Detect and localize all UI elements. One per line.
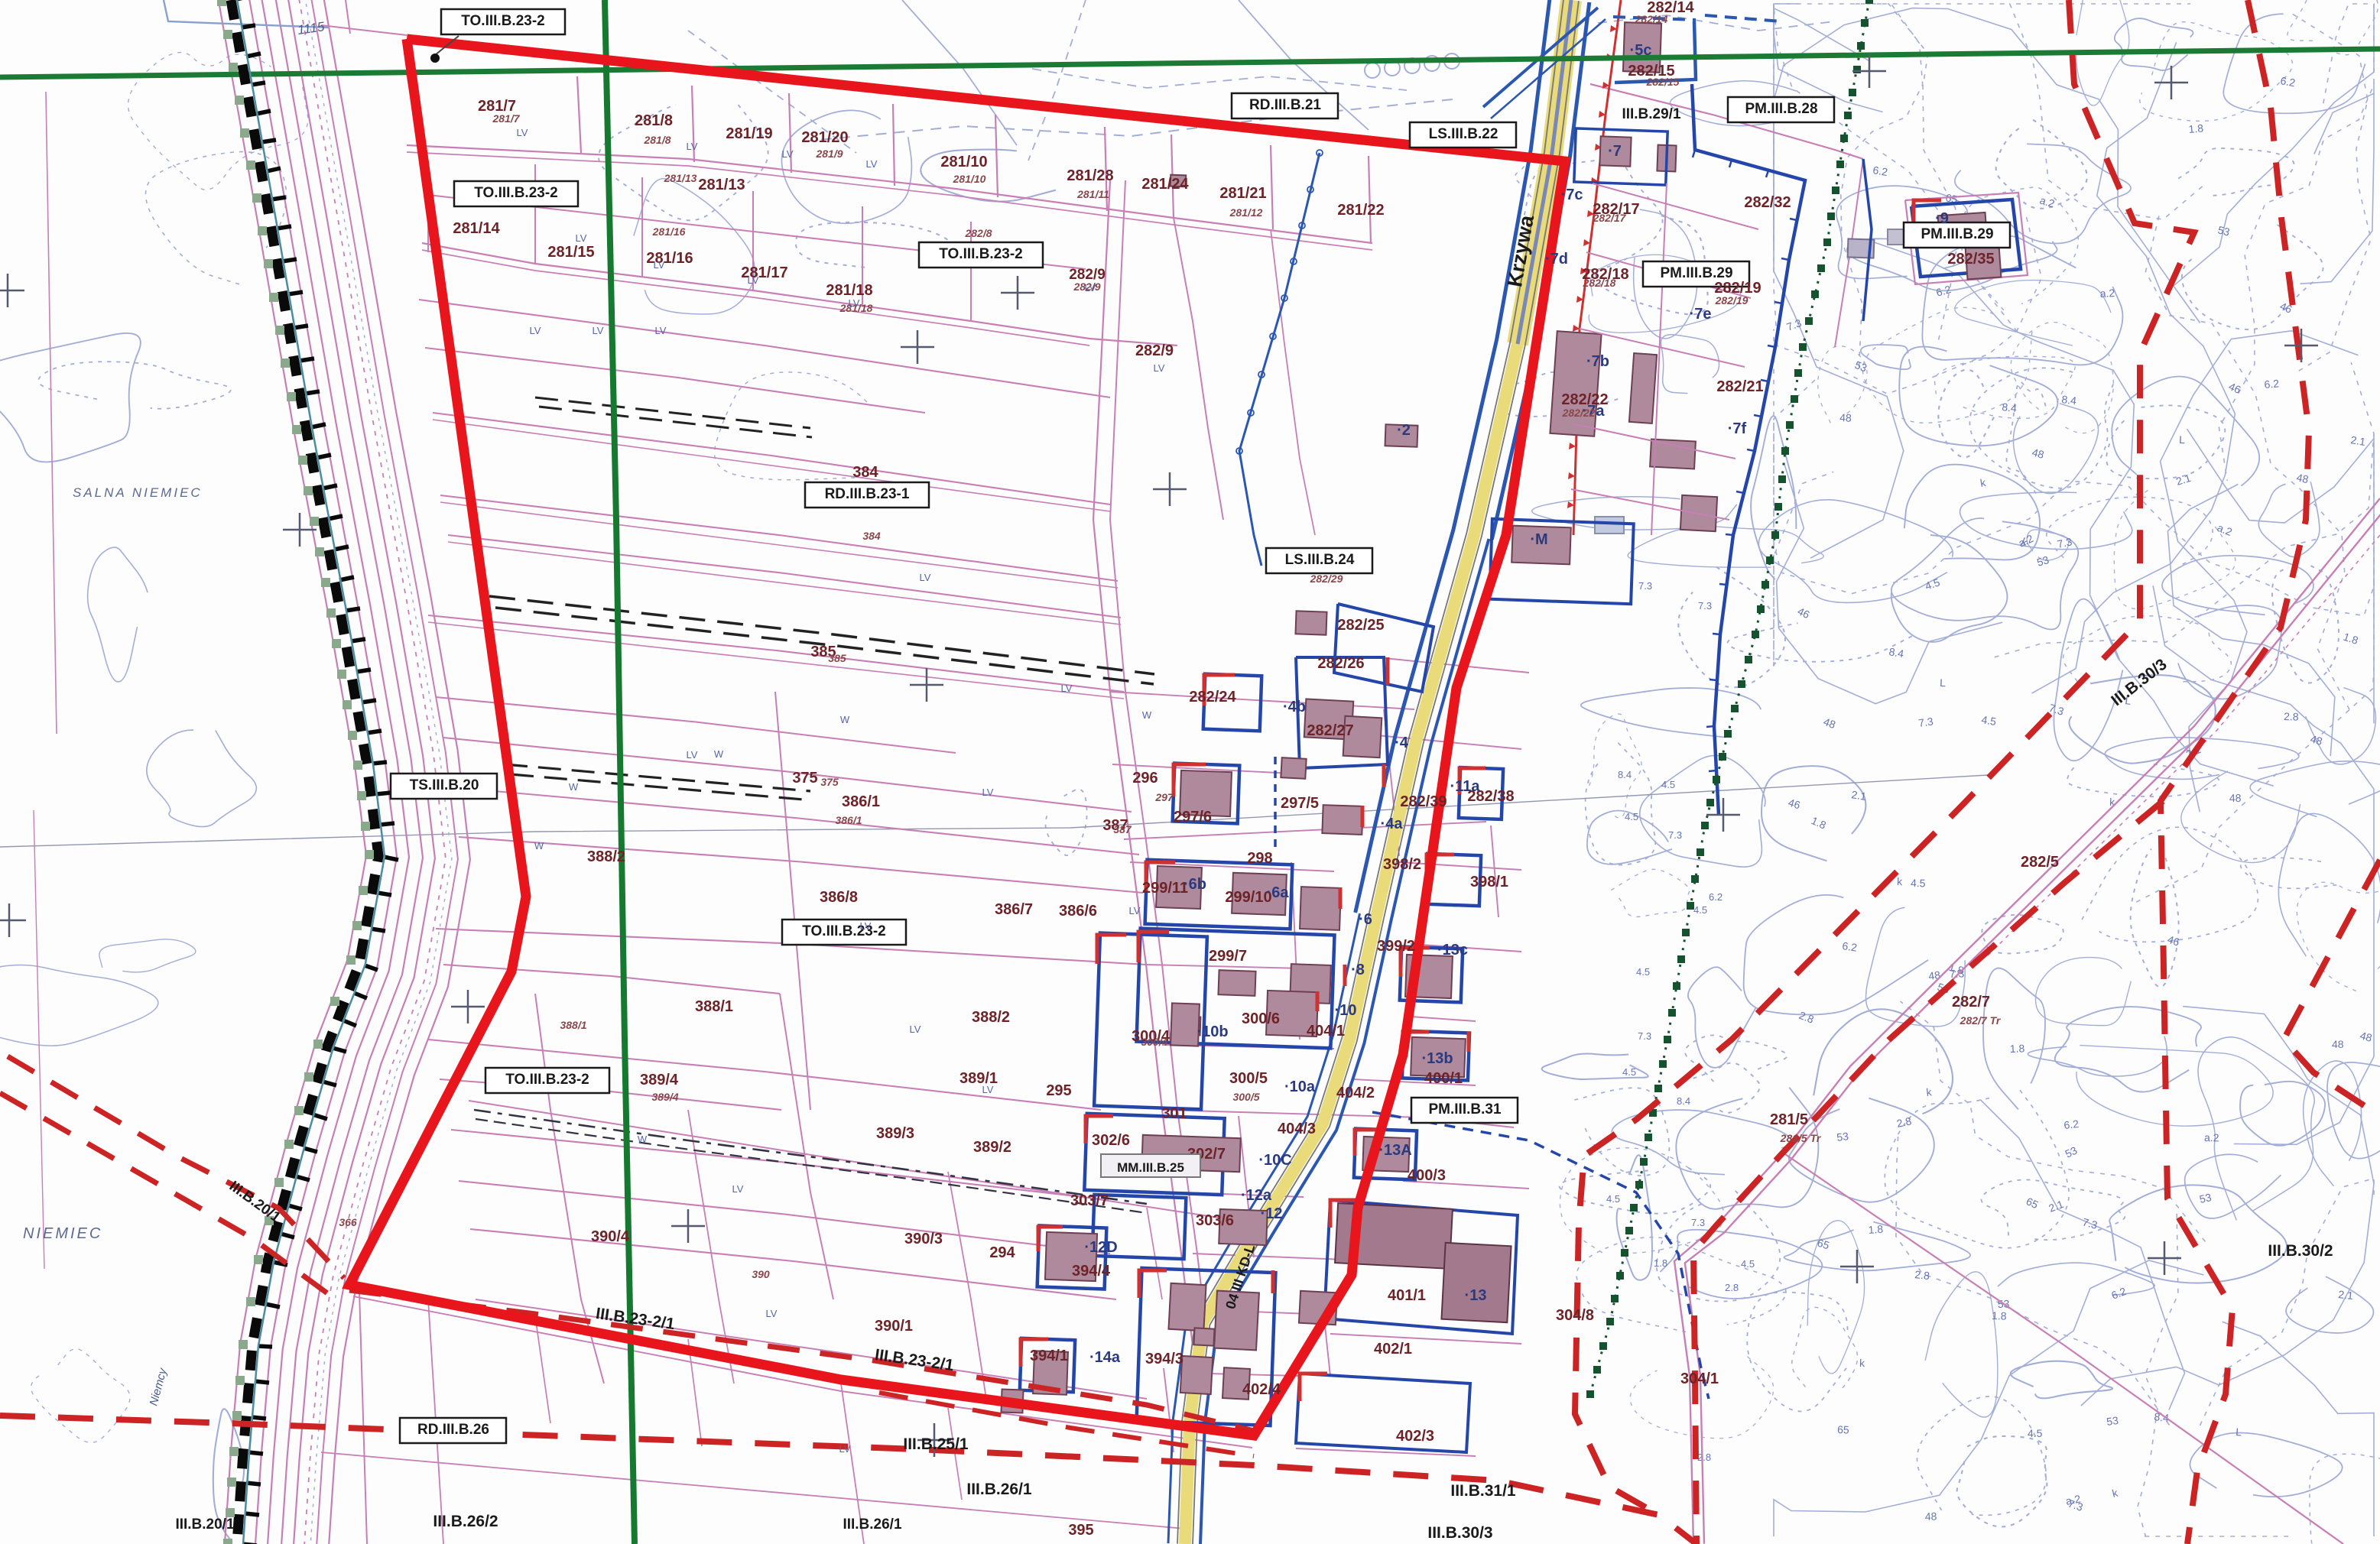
svg-text:53: 53 <box>2106 1414 2119 1428</box>
svg-text:1.8: 1.8 <box>2010 1042 2025 1055</box>
svg-text:III.B.31/1: III.B.31/1 <box>1450 1482 1516 1500</box>
svg-text:TO.III.B.23-2: TO.III.B.23-2 <box>939 246 1022 262</box>
svg-text:TO.III.B.23-2: TO.III.B.23-2 <box>474 185 557 201</box>
svg-text:366: 366 <box>339 1216 357 1228</box>
svg-text:281/10: 281/10 <box>953 173 986 185</box>
svg-text:LV: LV <box>982 1084 994 1095</box>
svg-text:LV: LV <box>576 232 587 244</box>
svg-text:·4b: ·4b <box>1283 699 1306 715</box>
svg-text:·10: ·10 <box>1335 1002 1357 1019</box>
svg-text:·7c: ·7c <box>1561 187 1583 203</box>
svg-text:·12: ·12 <box>1261 1205 1283 1222</box>
svg-text:282/25: 282/25 <box>1337 617 1384 634</box>
svg-text:RD.III.B.23-1: RD.III.B.23-1 <box>825 486 910 502</box>
svg-text:LV: LV <box>593 325 604 336</box>
svg-text:394/4: 394/4 <box>1072 1263 1111 1280</box>
svg-text:1.8: 1.8 <box>1868 1223 1884 1236</box>
svg-text:294: 294 <box>989 1244 1015 1261</box>
svg-text:282/27: 282/27 <box>1307 722 1353 739</box>
svg-text:300/6: 300/6 <box>1242 1010 1280 1027</box>
svg-text:L: L <box>1940 676 1947 689</box>
svg-text:282/21: 282/21 <box>1716 378 1763 395</box>
svg-text:404/1: 404/1 <box>1307 1023 1345 1040</box>
svg-text:394/1: 394/1 <box>1030 1348 1068 1364</box>
svg-text:48: 48 <box>1927 968 1941 982</box>
svg-text:LS.III.B.22: LS.III.B.22 <box>1429 126 1498 142</box>
svg-text:387: 387 <box>1113 823 1132 835</box>
svg-text:282/32: 282/32 <box>1744 194 1791 211</box>
svg-text:398/1: 398/1 <box>1470 874 1508 890</box>
svg-text:281/14: 281/14 <box>453 220 500 237</box>
svg-text:281/18: 281/18 <box>826 282 872 299</box>
svg-text:388/2: 388/2 <box>587 848 625 865</box>
svg-text:·M: ·M <box>1530 531 1547 548</box>
svg-text:281/20: 281/20 <box>801 129 848 146</box>
svg-text:III.B.26/1: III.B.26/1 <box>966 1481 1032 1498</box>
svg-text:PM.III.B.28: PM.III.B.28 <box>1745 101 1817 117</box>
svg-text:PM.III.B.29: PM.III.B.29 <box>1660 265 1732 281</box>
svg-text:281/24: 281/24 <box>1141 176 1189 193</box>
svg-text:PM.III.B.31: PM.III.B.31 <box>1428 1101 1501 1117</box>
svg-text:282/35: 282/35 <box>1947 251 1994 268</box>
svg-text:LV: LV <box>1154 362 1165 374</box>
svg-text:281/9: 281/9 <box>815 148 843 160</box>
svg-text:7.3: 7.3 <box>1691 1217 1705 1228</box>
svg-text:281/8: 281/8 <box>643 134 670 146</box>
svg-text:282/15: 282/15 <box>1646 76 1680 88</box>
svg-text:300/5: 300/5 <box>1229 1070 1268 1087</box>
svg-text:TO.III.B.23-2: TO.III.B.23-2 <box>802 923 885 939</box>
svg-text:6.2: 6.2 <box>1842 939 1859 954</box>
svg-text:8.4: 8.4 <box>2002 401 2018 414</box>
svg-text:L: L <box>2179 433 2186 446</box>
svg-text:a.2: a.2 <box>2204 1131 2219 1143</box>
svg-text:LV: LV <box>655 325 667 336</box>
svg-text:8.4: 8.4 <box>1618 769 1632 780</box>
svg-text:299/7: 299/7 <box>1209 948 1247 965</box>
svg-text:LV: LV <box>866 158 878 170</box>
svg-text:1.8: 1.8 <box>1992 1309 2007 1322</box>
svg-text:LV: LV <box>1129 905 1141 916</box>
svg-text:282/7 Tr: 282/7 Tr <box>1960 1014 2002 1027</box>
svg-text:LV: LV <box>839 1443 851 1455</box>
svg-text:394/3: 394/3 <box>1145 1351 1184 1367</box>
svg-text:8.4: 8.4 <box>1677 1095 1690 1107</box>
svg-text:4.5: 4.5 <box>1911 877 1926 889</box>
svg-text:NIEMIEC: NIEMIEC <box>23 1225 102 1242</box>
svg-text:281/16: 281/16 <box>652 225 686 238</box>
svg-text:LV: LV <box>732 1183 744 1195</box>
svg-text:·13c: ·13c <box>1437 942 1468 959</box>
svg-text:7.3: 7.3 <box>1638 580 1652 592</box>
svg-text:300/5: 300/5 <box>1232 1091 1259 1103</box>
svg-text:W: W <box>534 840 544 851</box>
svg-text:390: 390 <box>752 1268 770 1280</box>
svg-text:281/21: 281/21 <box>1219 185 1266 202</box>
svg-text:4.5: 4.5 <box>1741 1258 1755 1270</box>
svg-text:·10b: ·10b <box>1196 1023 1228 1040</box>
svg-text:384: 384 <box>862 530 881 542</box>
svg-text:384: 384 <box>852 464 878 481</box>
svg-text:8.4: 8.4 <box>2061 393 2077 407</box>
svg-text:386/7: 386/7 <box>995 901 1033 918</box>
svg-text:SALNA NIEMIEC: SALNA NIEMIEC <box>73 485 203 500</box>
svg-text:III.B.25/1: III.B.25/1 <box>903 1435 969 1453</box>
svg-text:281/13: 281/13 <box>698 177 745 193</box>
svg-text:297/6: 297/6 <box>1174 809 1212 826</box>
svg-text:282/17: 282/17 <box>1593 212 1627 224</box>
svg-text:·14a: ·14a <box>1089 1349 1121 1366</box>
svg-text:300/4: 300/4 <box>1141 1036 1167 1048</box>
svg-text:PM.III.B.29: PM.III.B.29 <box>1921 226 1993 242</box>
svg-text:4.5: 4.5 <box>1622 1066 1636 1078</box>
svg-text:MM.III.B.25: MM.III.B.25 <box>1117 1160 1184 1175</box>
svg-text:4.5: 4.5 <box>1636 966 1650 978</box>
svg-text:III.B.30/3: III.B.30/3 <box>1427 1524 1492 1542</box>
svg-text:1.8: 1.8 <box>2188 122 2204 135</box>
svg-text:TS.III.B.20: TS.III.B.20 <box>410 777 479 793</box>
svg-text:282/29: 282/29 <box>1310 573 1343 585</box>
svg-text:·4a: ·4a <box>1381 816 1404 832</box>
svg-text:297/5: 297/5 <box>1281 795 1319 812</box>
svg-text:388/2: 388/2 <box>972 1009 1010 1026</box>
svg-text:386/1: 386/1 <box>842 793 880 810</box>
svg-text:LV: LV <box>748 274 759 286</box>
svg-text:282/18: 282/18 <box>1583 277 1616 289</box>
svg-text:404/3: 404/3 <box>1278 1121 1316 1137</box>
svg-text:7.3: 7.3 <box>1638 1030 1651 1042</box>
svg-text:53: 53 <box>1836 1130 1849 1143</box>
svg-text:282/39: 282/39 <box>1400 793 1447 810</box>
svg-text:402/4: 402/4 <box>1242 1381 1281 1398</box>
svg-text:·6: ·6 <box>1359 911 1372 928</box>
svg-text:281/28: 281/28 <box>1067 167 1113 184</box>
svg-text:282/19: 282/19 <box>1715 294 1748 307</box>
svg-text:6.2: 6.2 <box>2063 1117 2080 1131</box>
svg-text:·6b: ·6b <box>1184 876 1206 893</box>
svg-text:48: 48 <box>2229 792 2242 804</box>
svg-text:297: 297 <box>1154 791 1174 803</box>
svg-text:III.B.26/2: III.B.26/2 <box>433 1513 498 1530</box>
svg-text:LV: LV <box>860 920 872 932</box>
svg-text:48: 48 <box>1839 411 1852 424</box>
svg-text:281/15: 281/15 <box>547 244 594 261</box>
svg-text:7.3: 7.3 <box>1668 829 1682 841</box>
svg-text:6.2: 6.2 <box>2264 377 2280 391</box>
svg-text:III.B.30/2: III.B.30/2 <box>2268 1242 2333 1260</box>
svg-text:·7e: ·7e <box>1690 306 1712 323</box>
svg-text:401/1: 401/1 <box>1388 1287 1426 1304</box>
svg-text:W: W <box>714 748 724 760</box>
svg-text:282/26: 282/26 <box>1317 655 1364 672</box>
svg-text:·5c: ·5c <box>1630 42 1652 59</box>
svg-text:·7: ·7 <box>1608 143 1622 160</box>
svg-text:III.B.20/1: III.B.20/1 <box>175 1516 235 1533</box>
svg-text:390/1: 390/1 <box>875 1318 913 1335</box>
svg-text:a.2: a.2 <box>2099 287 2115 300</box>
svg-text:298: 298 <box>1247 850 1272 867</box>
svg-text:L: L <box>2236 1426 2242 1439</box>
svg-text:8.4: 8.4 <box>2154 1410 2170 1424</box>
svg-text:RD.III.B.26: RD.III.B.26 <box>417 1422 489 1438</box>
svg-text:400/3: 400/3 <box>1408 1167 1446 1184</box>
svg-text:4.5: 4.5 <box>2028 1427 2043 1439</box>
svg-text:LV: LV <box>530 325 541 336</box>
svg-text:390/3: 390/3 <box>904 1231 943 1247</box>
svg-text:386/6: 386/6 <box>1059 903 1097 920</box>
svg-text:402/3: 402/3 <box>1396 1428 1434 1445</box>
svg-text:299/11: 299/11 <box>1142 880 1188 897</box>
svg-text:2.8: 2.8 <box>1697 1452 1711 1463</box>
svg-text:299/10: 299/10 <box>1225 889 1271 906</box>
svg-text:281/22: 281/22 <box>1337 202 1384 219</box>
svg-text:402/1: 402/1 <box>1374 1341 1412 1357</box>
svg-text:2.1: 2.1 <box>2338 1288 2354 1302</box>
svg-text:W: W <box>840 714 850 725</box>
svg-text:399/2: 399/2 <box>1377 938 1415 955</box>
svg-text:·12D: ·12D <box>1084 1239 1117 1256</box>
svg-text:281/8: 281/8 <box>635 112 673 129</box>
svg-text:302/6: 302/6 <box>1092 1132 1130 1149</box>
svg-text:TO.III.B.23-2: TO.III.B.23-2 <box>461 13 544 29</box>
svg-text:LV: LV <box>1061 683 1073 694</box>
svg-text:388/1: 388/1 <box>560 1019 586 1031</box>
svg-text:·9: ·9 <box>1935 210 1949 227</box>
svg-text:389/2: 389/2 <box>973 1139 1011 1156</box>
svg-text:7.3: 7.3 <box>1698 600 1712 611</box>
svg-text:4.5: 4.5 <box>1981 713 1998 728</box>
svg-text:281/5: 281/5 <box>1770 1111 1808 1128</box>
svg-text:65: 65 <box>1837 1423 1849 1436</box>
svg-text:LV: LV <box>910 1023 921 1035</box>
svg-text:390/4: 390/4 <box>591 1228 630 1245</box>
svg-text:LV: LV <box>654 259 665 271</box>
svg-text:395: 395 <box>1068 1522 1093 1539</box>
svg-text:W: W <box>638 1134 648 1145</box>
svg-text:296: 296 <box>1132 770 1158 787</box>
svg-text:48: 48 <box>1925 1510 1937 1523</box>
svg-text:RD.III.B.21: RD.III.B.21 <box>1249 97 1321 113</box>
svg-text:375: 375 <box>820 776 839 788</box>
svg-text:·13b: ·13b <box>1421 1050 1453 1067</box>
svg-text:·4: ·4 <box>1395 735 1409 751</box>
svg-text:·12a: ·12a <box>1241 1187 1272 1204</box>
svg-text:·2: ·2 <box>1397 422 1411 439</box>
svg-text:LV: LV <box>920 572 931 583</box>
svg-text:386/1: 386/1 <box>835 814 862 826</box>
svg-text:386/8: 386/8 <box>820 889 858 906</box>
svg-text:281/11: 281/11 <box>1076 188 1109 200</box>
svg-text:7.3: 7.3 <box>1917 715 1934 729</box>
svg-text:295: 295 <box>1046 1082 1071 1099</box>
svg-text:TO.III.B.23-2: TO.III.B.23-2 <box>505 1072 589 1088</box>
svg-text:W: W <box>569 781 579 793</box>
svg-text:·13: ·13 <box>1465 1287 1487 1304</box>
svg-text:281/13: 281/13 <box>664 172 697 184</box>
svg-text:301: 301 <box>1161 1105 1187 1122</box>
svg-text:282/24: 282/24 <box>1189 689 1236 706</box>
svg-text:281/19: 281/19 <box>726 125 772 142</box>
svg-text:303/7: 303/7 <box>1070 1192 1109 1209</box>
svg-text:·10C: ·10C <box>1258 1152 1291 1169</box>
svg-text:LV: LV <box>766 1308 778 1319</box>
svg-text:4.5: 4.5 <box>1661 779 1675 790</box>
svg-text:375: 375 <box>792 770 817 787</box>
svg-text:6.2: 6.2 <box>1709 891 1722 903</box>
svg-text:6.2: 6.2 <box>1872 164 1889 178</box>
svg-text:303/6: 303/6 <box>1196 1212 1234 1229</box>
svg-text:388/1: 388/1 <box>695 998 733 1015</box>
svg-text:282/7: 282/7 <box>1952 994 1990 1010</box>
svg-text:LV: LV <box>1085 282 1096 294</box>
svg-text:4.5: 4.5 <box>1693 904 1707 916</box>
svg-text:1.8: 1.8 <box>1654 1257 1667 1269</box>
svg-text:2.8: 2.8 <box>2284 710 2299 723</box>
svg-text:·10a: ·10a <box>1284 1079 1316 1095</box>
svg-text:LV: LV <box>782 148 794 160</box>
svg-text:·7f: ·7f <box>1728 420 1747 437</box>
svg-text:281/10: 281/10 <box>940 154 987 170</box>
svg-text:304/1: 304/1 <box>1680 1370 1719 1387</box>
svg-text:LV: LV <box>849 297 860 309</box>
svg-text:6.2: 6.2 <box>2279 74 2296 89</box>
svg-text:k: k <box>1859 1357 1865 1369</box>
svg-text:282/22: 282/22 <box>1562 407 1596 419</box>
svg-text:398/2: 398/2 <box>1383 856 1421 873</box>
svg-text:389/3: 389/3 <box>876 1125 914 1142</box>
svg-text:·7d: ·7d <box>1545 251 1568 268</box>
svg-text:404/2: 404/2 <box>1336 1085 1375 1101</box>
svg-text:304/8: 304/8 <box>1556 1307 1594 1324</box>
svg-text:·8: ·8 <box>1351 962 1365 978</box>
svg-text:389/4: 389/4 <box>651 1091 678 1103</box>
svg-text:282/5: 282/5 <box>2021 854 2059 871</box>
svg-text:2.1: 2.1 <box>1851 788 1868 803</box>
svg-text:2.8: 2.8 <box>1914 1268 1930 1282</box>
svg-text:LV: LV <box>517 127 528 138</box>
svg-text:LV: LV <box>687 749 698 761</box>
svg-text:281/5 Tr: 281/5 Tr <box>1780 1132 1822 1144</box>
svg-text:III.B.29/1: III.B.29/1 <box>1622 106 1681 122</box>
svg-text:W: W <box>1142 709 1152 721</box>
svg-text:LS.III.B.24: LS.III.B.24 <box>1285 552 1355 568</box>
svg-text:48: 48 <box>2332 1038 2344 1050</box>
svg-text:282/8: 282/8 <box>964 227 992 239</box>
svg-text:LV: LV <box>687 141 698 152</box>
svg-text:LV: LV <box>982 787 994 798</box>
svg-text:III.B.26/1: III.B.26/1 <box>843 1516 902 1533</box>
svg-text:400/1: 400/1 <box>1424 1070 1463 1087</box>
svg-text:·7b: ·7b <box>1586 353 1609 370</box>
svg-text:282/9: 282/9 <box>1135 342 1174 359</box>
svg-text:385: 385 <box>828 652 846 664</box>
svg-text:282/14: 282/14 <box>1635 13 1668 25</box>
svg-text:281/12: 281/12 <box>1229 206 1263 219</box>
svg-text:389/4: 389/4 <box>640 1072 679 1088</box>
svg-text:281/7: 281/7 <box>492 112 520 125</box>
svg-text:4.5: 4.5 <box>1606 1193 1620 1205</box>
svg-text:8.4: 8.4 <box>1888 645 1904 660</box>
svg-text:2.8: 2.8 <box>1725 1282 1739 1293</box>
svg-text:·11a: ·11a <box>1450 778 1481 795</box>
svg-text:4.5: 4.5 <box>1625 811 1638 822</box>
svg-text:·13A: ·13A <box>1378 1142 1411 1159</box>
svg-text:·6a: ·6a <box>1267 884 1290 901</box>
svg-text:2.1: 2.1 <box>2350 433 2367 448</box>
